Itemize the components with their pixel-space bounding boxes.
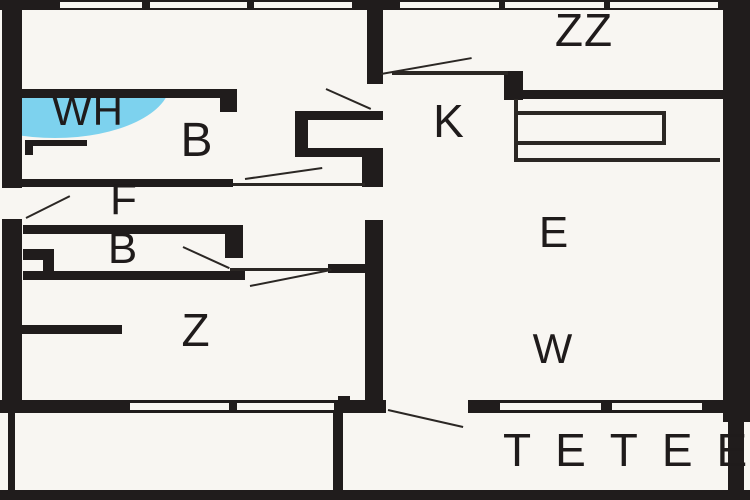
counter-line bbox=[662, 111, 666, 145]
wall bbox=[43, 249, 54, 273]
counter-line bbox=[514, 99, 518, 161]
room-label-terrace: TETEE bbox=[503, 427, 750, 473]
wall bbox=[0, 490, 750, 500]
door-swing-line bbox=[326, 88, 372, 110]
wall bbox=[225, 225, 243, 258]
window-marker bbox=[237, 403, 334, 410]
room-label-wh: WH bbox=[52, 90, 124, 132]
wall bbox=[338, 396, 350, 413]
wh-fixture-inner bbox=[33, 146, 88, 155]
door-swing-line bbox=[183, 246, 230, 269]
window-marker bbox=[610, 2, 718, 8]
counter-line bbox=[514, 158, 720, 162]
door-swing-line bbox=[26, 195, 71, 219]
counter-line bbox=[230, 268, 330, 271]
wall bbox=[333, 413, 343, 493]
wall bbox=[8, 413, 15, 493]
wall bbox=[362, 148, 383, 187]
floor-plan: ZZWHBKFBZEWTETEE bbox=[0, 0, 750, 500]
counter-line bbox=[233, 183, 365, 186]
room-label-zz: ZZ bbox=[555, 7, 613, 53]
window-marker bbox=[254, 2, 352, 8]
wall bbox=[295, 111, 383, 120]
room-label-z: Z bbox=[181, 307, 210, 353]
wall bbox=[367, 0, 383, 84]
room-label-e: E bbox=[539, 211, 569, 255]
wall bbox=[328, 264, 366, 273]
door-swing-line bbox=[245, 167, 322, 180]
room-label-k: K bbox=[433, 98, 465, 144]
window-marker bbox=[150, 2, 247, 8]
window-marker bbox=[130, 403, 229, 410]
counter-line bbox=[392, 71, 508, 75]
window-marker bbox=[60, 2, 142, 8]
wall bbox=[22, 325, 122, 334]
room-label-w: W bbox=[533, 328, 574, 370]
wall bbox=[220, 89, 237, 112]
window-marker bbox=[400, 2, 499, 8]
room-label-f: F bbox=[110, 178, 138, 222]
wall bbox=[295, 111, 308, 157]
wall bbox=[723, 0, 750, 422]
room-label-b2: B bbox=[108, 227, 138, 271]
window-marker bbox=[612, 403, 702, 410]
door-swing-line bbox=[250, 269, 331, 287]
wall bbox=[512, 90, 750, 99]
door-opening bbox=[2, 188, 22, 219]
counter-line bbox=[514, 111, 666, 115]
room-label-b1: B bbox=[180, 117, 213, 165]
wall bbox=[365, 220, 383, 413]
counter-line bbox=[514, 141, 666, 145]
window-marker bbox=[500, 403, 601, 410]
